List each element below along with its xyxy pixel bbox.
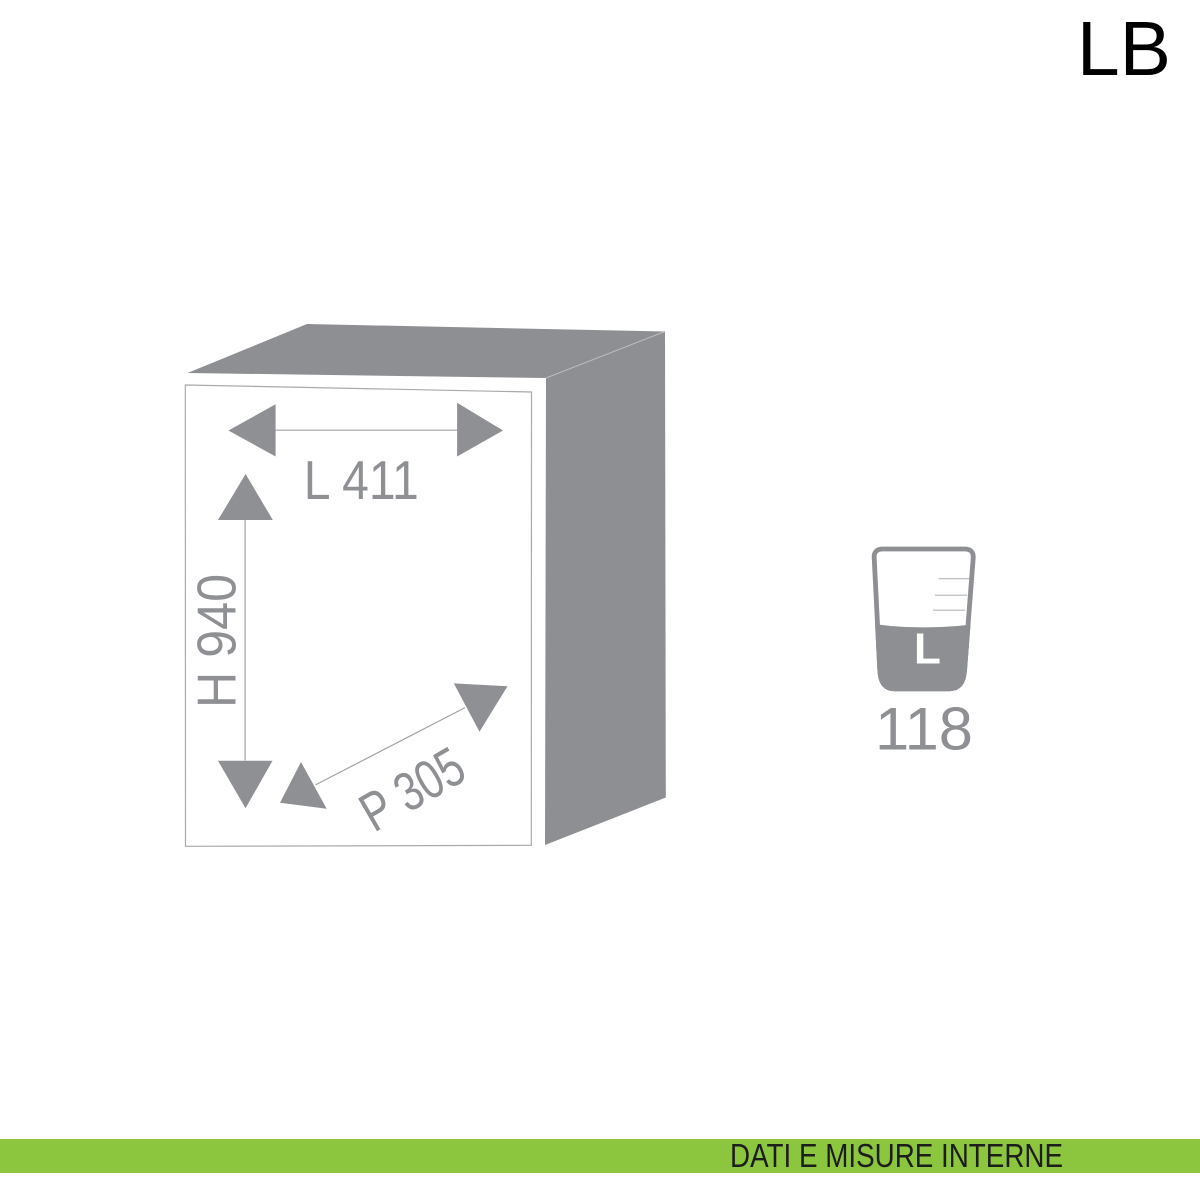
svg-text:DATI E MISURE INTERNE: DATI E MISURE INTERNE [730,1138,1063,1175]
svg-text:L: L [914,624,941,673]
svg-text:118: 118 [875,696,973,763]
svg-text:L 411: L 411 [304,449,419,511]
svg-text:H 940: H 940 [185,574,247,708]
svg-text:LB: LB [1077,6,1171,92]
